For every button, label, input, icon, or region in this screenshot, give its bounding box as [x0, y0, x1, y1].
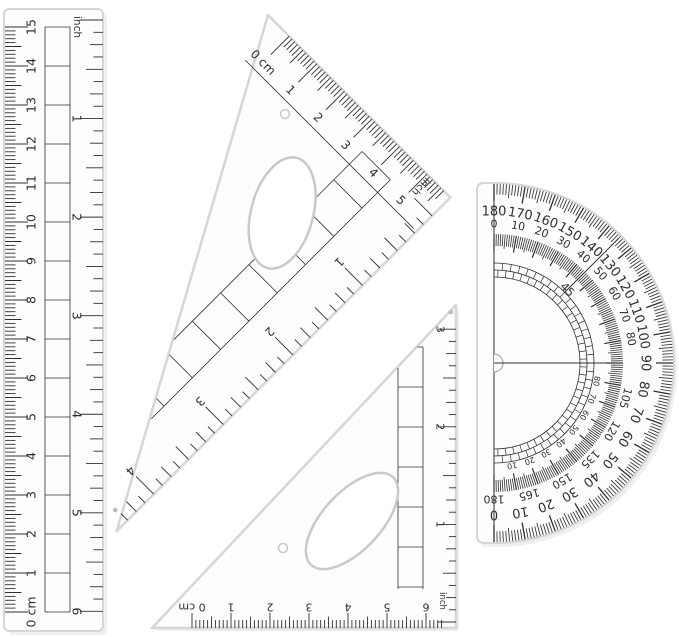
cm-number: 6: [24, 374, 39, 382]
degree-number: 10: [511, 503, 530, 521]
inch-number: 2: [70, 213, 85, 221]
cm-number: 7: [24, 335, 39, 343]
cm-number: 5: [384, 601, 391, 614]
pin-hole: [279, 544, 288, 553]
cm-number: 8: [24, 296, 39, 304]
cm-number: 13: [24, 97, 39, 113]
inch-number: 2: [434, 423, 447, 430]
inch-number: 1: [434, 521, 447, 528]
cm-number: 15: [24, 19, 39, 35]
small-inch-unit-label: inch: [437, 592, 447, 610]
inch-number: 5: [70, 509, 85, 517]
degree-number: 0: [491, 218, 498, 231]
cm-number: 11: [24, 175, 39, 191]
cm-number: 4: [24, 452, 39, 460]
cm-number: 3: [306, 601, 313, 614]
mold-dot: [112, 507, 119, 514]
cm-number: 12: [24, 136, 39, 152]
cm-number: 10: [24, 214, 39, 230]
cm-number: 9: [24, 257, 39, 265]
inch-number: 3: [70, 312, 85, 320]
ruler: 0 cm123456789101112131415123456inch: [4, 9, 107, 635]
mold-dot: [449, 310, 454, 315]
cm-number: 2: [267, 601, 274, 614]
degree-tick: [503, 531, 504, 541]
cm-number: 2: [24, 530, 39, 538]
degree-number: 90: [638, 355, 653, 372]
cm-number: 1: [228, 601, 235, 614]
cm-number: 6: [423, 601, 430, 614]
cm-number: 14: [24, 58, 39, 74]
inch-number: 6: [70, 607, 85, 615]
degree-tick: [503, 184, 504, 194]
inch-number: 1: [70, 115, 85, 123]
geometry-set-scene: 0 cm123456789101112131415123456inch 0 cm…: [0, 0, 679, 637]
cm-number: 0 cm: [178, 601, 205, 614]
ruler-inch-unit-label: inch: [71, 16, 83, 38]
degree-tick: [662, 372, 672, 373]
degree-number: 0: [490, 507, 498, 522]
cm-number: 4: [345, 601, 352, 614]
ruler-body: [4, 9, 103, 631]
cm-number: 0 cm: [24, 597, 39, 628]
inch-number: 4: [70, 410, 85, 418]
cm-number: 5: [24, 413, 39, 421]
protractor: 1801701601501401301201101009080706050403…: [477, 183, 677, 547]
degree-number: 80: [634, 380, 652, 399]
cm-number: 3: [24, 491, 39, 499]
degree-tick: [662, 354, 672, 355]
degree-number: 10: [510, 218, 526, 233]
geometry-set-photo: 0 cm123456789101112131415123456inch 0 cm…: [0, 0, 679, 637]
degree-number: 180: [484, 493, 505, 506]
degree-number: 80: [623, 331, 638, 347]
cm-number: 1: [24, 569, 39, 577]
inch-number: 3: [434, 326, 447, 333]
